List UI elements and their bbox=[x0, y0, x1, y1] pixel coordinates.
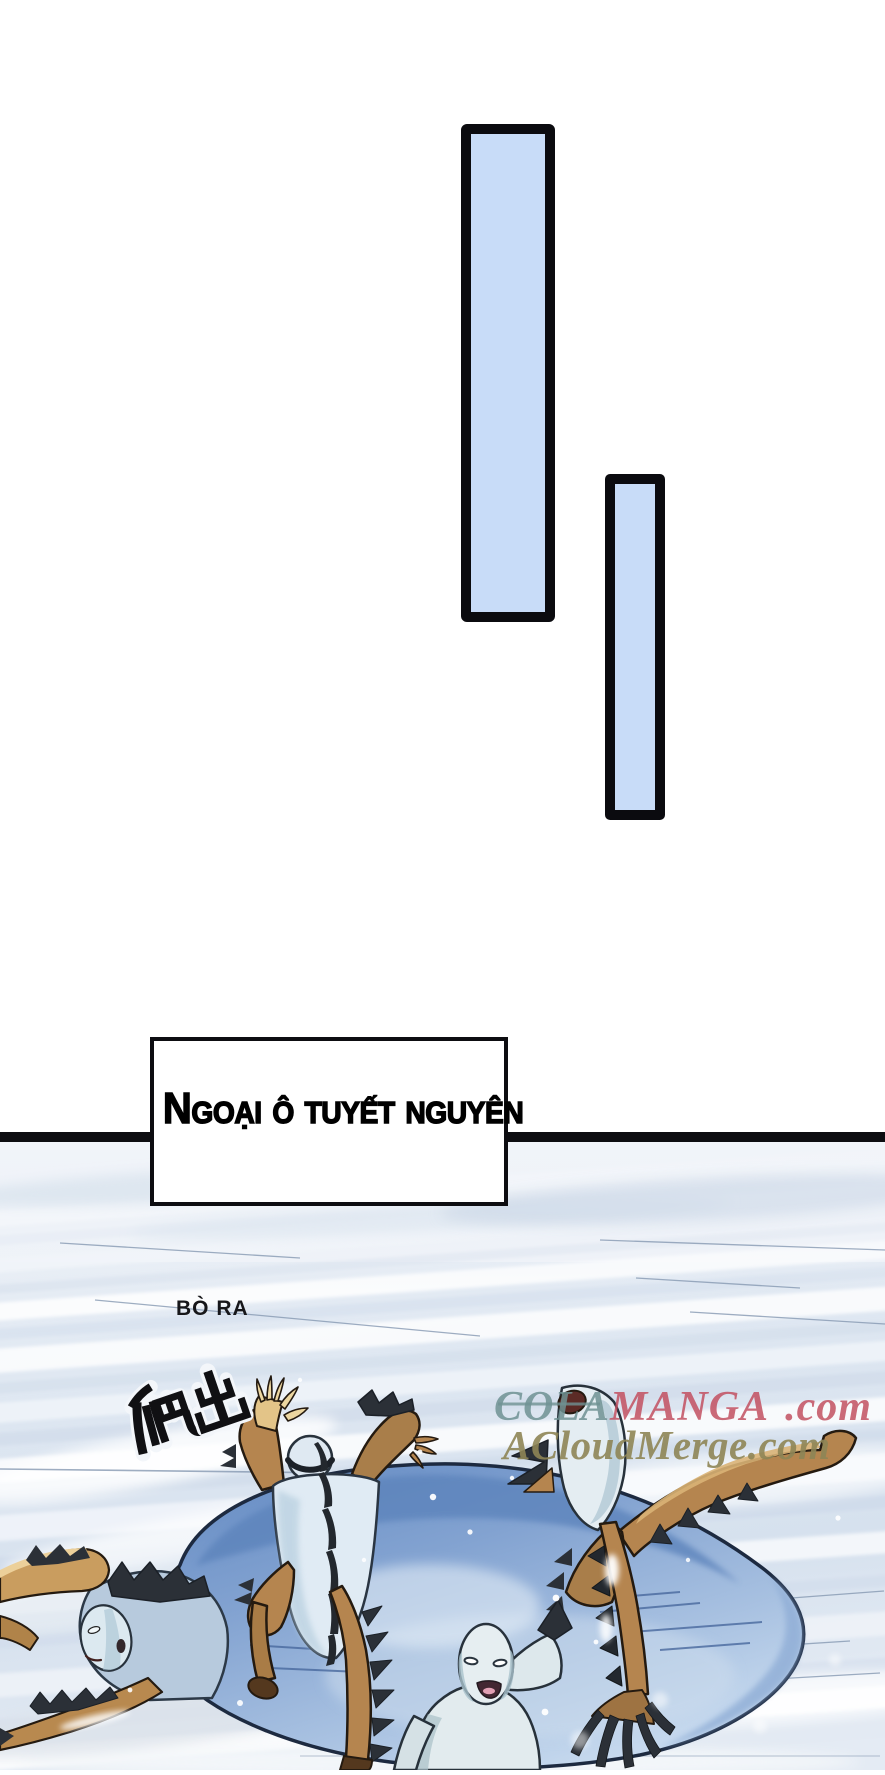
svg-text:ACloudMerge.com: ACloudMerge.com bbox=[500, 1422, 831, 1468]
svg-text:BÒ RA: BÒ RA bbox=[176, 1296, 249, 1320]
